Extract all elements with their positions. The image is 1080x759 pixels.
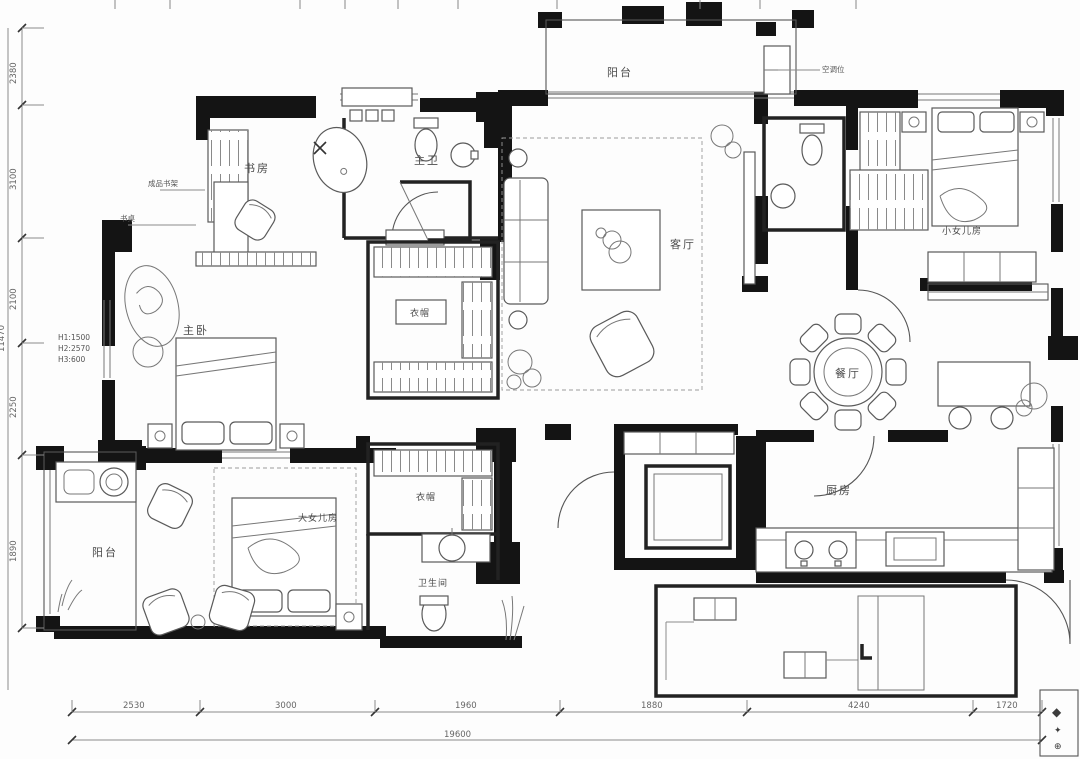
label-bathroom: 卫生间 — [418, 577, 448, 589]
label-daughter-small: 小女儿房 — [942, 225, 982, 237]
dim-bottom-3: 1880 — [641, 701, 663, 711]
label-master-bath: 主卫 — [414, 154, 440, 167]
label-closet-upper: 衣帽 — [410, 307, 430, 319]
study-furniture — [196, 130, 316, 266]
dim-left-total: 11470 — [0, 325, 7, 352]
kitchen-detail-inset — [656, 586, 1016, 696]
dim-bottom-1: 3000 — [275, 701, 297, 711]
dim-bottom-0: 2530 — [123, 701, 145, 711]
label-daughter-big: 大女儿房 — [298, 512, 338, 524]
label-balcony-side: 阳台 — [92, 545, 118, 559]
balcony-top-items — [764, 46, 820, 94]
dim-bottom-2: 1960 — [455, 701, 477, 711]
balcony-side-items — [56, 462, 136, 612]
living-room-furniture — [502, 125, 755, 390]
label-master-bedroom: 主卧 — [183, 324, 209, 337]
legend-symbol-diamond: ◆ — [1052, 705, 1062, 719]
dim-bottom-5: 1720 — [996, 701, 1018, 711]
dim-bottom-total: 19600 — [444, 730, 471, 740]
label-dining: 餐厅 — [835, 366, 861, 380]
label-living: 客厅 — [670, 237, 696, 251]
anno-h1: H1:1500 — [58, 333, 90, 342]
master-bedroom-furniture — [117, 260, 304, 450]
label-balcony-top: 阳台 — [607, 65, 633, 79]
anno-desk: 书桌 — [120, 213, 135, 223]
anno-ac-unit: 空调位 — [822, 64, 845, 74]
anno-bookshelf: 成品书架 — [148, 178, 178, 188]
kitchen-counters — [756, 448, 1054, 572]
dimension-bottom: 2530 3000 1960 1880 4240 1720 19600 — [68, 700, 1046, 744]
dim-left-1: 3100 — [9, 168, 19, 190]
anno-h2: H2:2570 — [58, 344, 90, 353]
label-study: 书房 — [244, 162, 270, 175]
utility-room — [624, 432, 734, 548]
island-table — [938, 362, 1047, 429]
top-tick-marks — [115, 0, 856, 9]
legend-symbol-star: ✦ — [1054, 726, 1062, 736]
daughter-big-furniture — [140, 468, 362, 638]
closet-upper — [374, 247, 492, 392]
dim-bottom-4: 4240 — [848, 701, 870, 711]
dimension-left: 2380 3100 2100 2250 1890 11470 — [0, 24, 44, 690]
closet-lower — [374, 450, 492, 530]
label-kitchen: 厨房 — [826, 484, 852, 497]
dim-left-3: 2250 — [9, 396, 19, 418]
dim-left-4: 1890 — [9, 540, 19, 562]
dim-left-2: 2100 — [9, 288, 19, 310]
dim-left-0: 2380 — [9, 62, 19, 84]
legend-box: ◆ ✦ ⊕ — [1040, 690, 1078, 756]
floor-plan-canvas: 书房 主卫 主卧 衣帽 衣帽 卫生间 客厅 阳台 小女儿房 餐厅 厨房 大女儿房… — [0, 0, 1080, 759]
label-closet-lower: 衣帽 — [416, 491, 436, 503]
legend-symbol-target: ⊕ — [1054, 742, 1062, 752]
anno-h3: H3:600 — [58, 355, 85, 364]
floor-plan-sheet: 书房 主卫 主卧 衣帽 衣帽 卫生间 客厅 阳台 小女儿房 餐厅 厨房 大女儿房… — [0, 0, 1080, 759]
